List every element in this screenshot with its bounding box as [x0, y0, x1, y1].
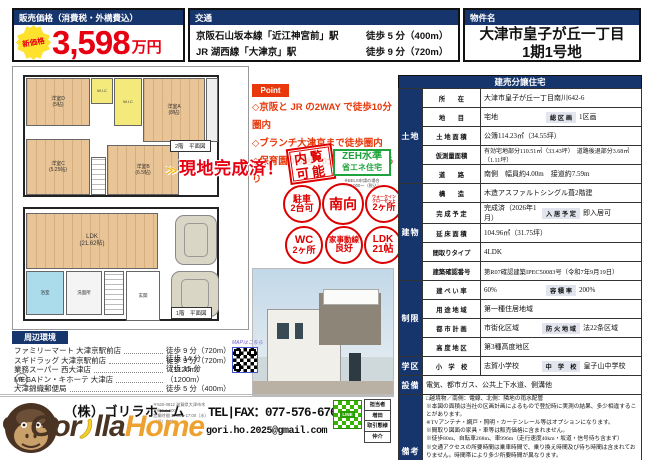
- access-walk: 徒歩 9 分（720m）: [366, 45, 448, 61]
- stamp-ldk-size: LDK 21帖: [364, 226, 402, 264]
- stamp-text: 良好: [335, 244, 353, 253]
- transaction-type-label: 取引態様: [365, 421, 390, 432]
- equipment-value: 電気、都市ガス、公共上下水道、側溝他: [423, 376, 642, 395]
- ldk-label: LDK (21.62帖): [79, 234, 104, 248]
- company-logo-text: Gor lla Home: [30, 410, 204, 444]
- road-label: 道 路: [423, 165, 481, 184]
- remark-line: ※交通アクセスの所要時間は乗車時間で、乗り換え時間及び待ち時間は含まれておりませ…: [426, 444, 638, 460]
- preview-line1: 内覧: [288, 147, 332, 168]
- new-price-badge-label: 新価格: [17, 26, 51, 60]
- spec-grid: 土地 所 在 大津市皇子が丘一丁目南川642-6 地 目 宅地総 区 画1区画 …: [398, 88, 642, 460]
- agent-name: 増田: [365, 411, 390, 422]
- completion-value: 完成済（2026年1月）入 居 予 定即入居可: [481, 203, 642, 224]
- property-name-header: 物件名: [465, 10, 639, 25]
- landarea-value: 公簿114.23㎡（34.55坪）: [481, 127, 642, 146]
- remark-line: □越境物／南側：電線、北側：隣地の雨水配管: [426, 395, 638, 403]
- floorarea-value: 104.96㎡（31.75坪）: [481, 224, 642, 243]
- stamp-text: 2ヶ所: [372, 203, 395, 212]
- wic2-label: W.I.C: [123, 99, 133, 105]
- permit-value: 第R07確認建築IPEC50083号（令和7年9月19日）: [481, 262, 642, 281]
- balcony: [206, 78, 218, 142]
- washroom: 洗面所: [66, 271, 102, 315]
- logo-part2: lla: [94, 410, 124, 444]
- price-box: 販売価格（消費税・外構費込） 新価格 3,598 万円: [12, 8, 185, 62]
- location-label: 所 在: [423, 89, 481, 108]
- room-c-label: 洋室C (5.25帖): [49, 161, 67, 173]
- accent-mark: ≫: [166, 165, 178, 177]
- coverage-sublabel: 容 積 率: [546, 285, 576, 296]
- completion-sublabel: 入 居 予 定: [542, 208, 580, 219]
- room-a: 洋室A (8帖): [143, 78, 205, 142]
- surroundings-list: ファミリーマート 大津京駅前店徒歩 9 分（720m） スギドラッグ 大津京駅前…: [14, 347, 230, 394]
- remark-line: ※間取り図面の家具・車等は販売価格に含まれません。: [426, 427, 638, 435]
- zeh-line1: ZEH水準: [335, 151, 389, 163]
- road-value: 南側 幅員約4.00m 接道約7.59m: [481, 165, 642, 184]
- school-value: 志賀小学校中 学 校皇子山中学校: [481, 357, 642, 376]
- room-ldk: LDK (21.62帖): [26, 213, 158, 269]
- stamp-south-facing: 南向: [322, 183, 364, 225]
- stamp-text: 2ヶ所: [292, 246, 315, 255]
- zoning-value: 第一種住居地域: [481, 300, 642, 319]
- access-route: JR 湖西線「大津京」駅: [196, 45, 366, 61]
- permit-label: 建築確認番号: [423, 262, 481, 281]
- bathroom: 浴室: [26, 271, 64, 315]
- point-item: ◇京阪と JR の2WAY で徒歩10分圏内: [252, 99, 398, 135]
- structure-label: 構 造: [423, 184, 481, 203]
- access-box: 交通 京阪石山坂本線「近江神宮前」駅 徒歩 5 分（400m） JR 湖西線「大…: [188, 8, 460, 62]
- height-label: 高 度 地 区: [423, 338, 481, 357]
- group-remarks: 備考: [399, 395, 423, 460]
- access-header: 交通: [190, 10, 458, 25]
- school-label: 小 学 校: [423, 357, 481, 376]
- layout-value: 4LDK: [481, 243, 642, 262]
- cityplan-sublabel: 防 火 地 域: [542, 323, 580, 334]
- banana-icon: [79, 418, 94, 440]
- coverage-label: 建 ぺ い 率: [423, 281, 481, 300]
- poi-time: 徒歩 15 分（1200m）: [166, 363, 230, 385]
- cityplan-value: 市街化区域防 火 地 域法22条区域: [481, 319, 642, 338]
- stamp-text: 21帖: [372, 245, 393, 256]
- floorplan-panel: 洋室D (5帖) W.I.C W.I.C 洋室A (8帖) 洋室C (5.25帖…: [12, 66, 249, 330]
- flyer-page: 販売価格（消費税・外構費込） 新価格 3,598 万円 交通 京阪石山坂本線「近…: [0, 0, 650, 460]
- group-school: 学区: [399, 357, 423, 376]
- wic1-label: W.I.C: [97, 88, 107, 94]
- coverage-value: 60%容 積 率200%: [481, 281, 642, 300]
- remark-line: ※本図の面積は当社の区画計画によるもので登記時に実測の結果、多少相違することがあ…: [426, 403, 638, 419]
- company-email: gori.ho.2025@gmail.com: [206, 426, 327, 437]
- access-line: JR 湖西線「大津京」駅 徒歩 9 分（720m）: [196, 45, 452, 61]
- agent-info-box: 担当者 増田 取引態様 仲介: [364, 399, 391, 443]
- entrance: 玄関: [126, 271, 160, 321]
- preview-available-stamp: 内覧 可能: [286, 143, 337, 185]
- spec-table-title: 建売分譲住宅: [398, 75, 642, 88]
- layout-label: 間取りタイプ: [423, 243, 481, 262]
- stamp-wc: WC 2ヶ所: [285, 226, 323, 264]
- remark-line: ※徒歩80m、自転車268m、車996m（走行速度40km・坂道・信号待ち含まず…: [426, 435, 638, 443]
- line-qr-label: LINE: [340, 411, 355, 418]
- survey-value: 有効宅地部分110.51㎡（33.43坪） 道路後退部分3.68㎡（1.11坪）: [481, 146, 642, 165]
- surroundings-item: 大津錦織郵便局徒歩 5 分（400m）: [14, 385, 230, 394]
- transaction-type: 仲介: [365, 432, 390, 443]
- cityplan-v1: 市街化区域: [484, 323, 539, 333]
- new-price-badge: 新価格: [19, 28, 48, 57]
- tel-fax: TEL|FAX：077-576-6763: [208, 401, 343, 420]
- poi-name: 大津錦織郵便局: [14, 383, 67, 394]
- access-walk: 徒歩 5 分（400m）: [366, 29, 448, 45]
- landcat-v2: 1区画: [579, 112, 638, 122]
- access-route: 京阪石山坂本線「近江神宮前」駅: [196, 29, 366, 45]
- school-sublabel: 中 学 校: [542, 361, 581, 372]
- balcony-rail: [323, 289, 379, 305]
- cityplan-v2: 法22条区域: [583, 323, 638, 333]
- price-body: 新価格 3,598 万円: [14, 25, 183, 60]
- price-unit: 万円: [132, 36, 162, 57]
- stamp-text: 南向: [329, 197, 357, 212]
- landcat-v1: 宅地: [484, 112, 543, 122]
- landcat-value: 宅地総 区 画1区画: [481, 108, 642, 127]
- price-amount: 3,598: [52, 28, 130, 58]
- entry-label: 玄関: [139, 293, 148, 299]
- window: [277, 323, 289, 339]
- room-d-label: 洋室D (5帖): [51, 96, 65, 108]
- room-b-label: 洋室B (6.5帖): [135, 164, 150, 176]
- bath-label: 浴室: [41, 290, 50, 296]
- completed-stamp: ≫現地完成済！: [166, 154, 284, 179]
- remarks-cell: □越境物／南側：電線、北側：隣地の雨水配管 ※本図の面積は当社の区画計画によるも…: [423, 395, 642, 460]
- property-name-box: 物件名 大津市皇子が丘一丁目 1期1号地: [463, 8, 641, 62]
- wash-label: 洗面所: [77, 290, 91, 296]
- closet-wic1: W.I.C: [91, 78, 113, 104]
- floor2-label: 2階 平面図: [170, 140, 211, 152]
- room-c: 洋室C (5.25帖): [26, 139, 90, 195]
- surroundings-header: 周辺環境: [12, 331, 68, 344]
- closet-wic2: W.I.C: [114, 78, 142, 126]
- floorarea-label: 延 床 面 積: [423, 224, 481, 243]
- group-building: 建物: [399, 184, 423, 281]
- spec-table: 建売分譲住宅 土地 所 在 大津市皇子が丘一丁目南川642-6 地 目 宅地総 …: [398, 75, 642, 460]
- remark-line: ※TVアンテナ・網戸・照明・カーテンレール等はオプションになります。: [426, 419, 638, 427]
- floorplan-1f: LDK (21.62帖) 浴室 洗面所 玄関: [23, 207, 219, 321]
- access-line: 京阪石山坂本線「近江神宮前」駅 徒歩 5 分（400m）: [196, 29, 452, 45]
- school-v2: 皇子山中学校: [583, 361, 638, 371]
- preview-line2: 可能: [290, 162, 334, 183]
- point-title: Point: [252, 84, 289, 97]
- room-d: 洋室D (5帖): [26, 78, 90, 126]
- property-name-line2: 1期1号地: [465, 44, 639, 62]
- map-note: MAPはこちら: [232, 339, 263, 346]
- logo-part1: Gor: [30, 410, 80, 444]
- stairs-1f: [104, 271, 124, 315]
- landcat-sublabel: 総 区 画: [546, 112, 576, 123]
- coverage-v2: 200%: [579, 286, 638, 294]
- structure-value: 木造アスファルトシングル葺2階建: [481, 184, 642, 203]
- agent-role-label: 担当者: [365, 400, 390, 411]
- car-icon: [175, 215, 217, 265]
- completed-stamp-text: 現地完成済！: [179, 159, 284, 178]
- poi-time: 徒歩 5 分（400m）: [166, 383, 230, 394]
- access-body: 京阪石山坂本線「近江神宮前」駅 徒歩 5 分（400m） JR 湖西線「大津京」…: [190, 25, 458, 61]
- stairs-2f: [91, 157, 106, 195]
- group-land: 土地: [399, 89, 423, 184]
- exterior-photo: [252, 268, 394, 396]
- landarea-label: 土 地 面 積: [423, 127, 481, 146]
- stamp-parking: 駐車 2台可: [283, 185, 321, 223]
- cityplan-label: 都 市 計 画: [423, 319, 481, 338]
- completion-v2: 即入居可: [583, 208, 638, 218]
- price-header: 販売価格（消費税・外構費込）: [14, 10, 183, 25]
- zeh-badge: ZEH水準 省エネ住宅: [333, 149, 391, 176]
- school-v1: 志賀小学校: [484, 361, 539, 371]
- window: [295, 323, 303, 339]
- coverage-v1: 60%: [484, 286, 543, 294]
- logo-part3: Home: [125, 410, 204, 444]
- completion-label: 完 成 予 定: [423, 203, 481, 224]
- door: [349, 353, 361, 383]
- map-qr-code: [232, 347, 258, 373]
- completion-v1: 完成済（2026年1月）: [484, 203, 539, 223]
- group-equipment: 設備: [399, 376, 423, 395]
- survey-label: 仮測量面積: [423, 146, 481, 165]
- footer-divider: [0, 394, 394, 397]
- line-qr-code: LINE: [333, 400, 362, 429]
- height-value: 第3種高度地区: [481, 338, 642, 357]
- location-value: 大津市皇子が丘一丁目南川642-6: [481, 89, 642, 108]
- ground: [253, 381, 393, 395]
- stamp-housework-flow: 家事動線 良好: [325, 226, 363, 264]
- floor1-label: 1階 平面図: [171, 307, 212, 319]
- property-name-line1: 大津市皇子が丘一丁目: [465, 26, 639, 44]
- zoning-label: 用 途 地 域: [423, 300, 481, 319]
- room-a-label: 洋室A (8帖): [167, 104, 180, 116]
- landcat-label: 地 目: [423, 108, 481, 127]
- zeh-line2: 省エネ住宅: [335, 163, 389, 172]
- stamp-text: 2台可: [290, 204, 313, 213]
- group-restriction: 制限: [399, 281, 423, 357]
